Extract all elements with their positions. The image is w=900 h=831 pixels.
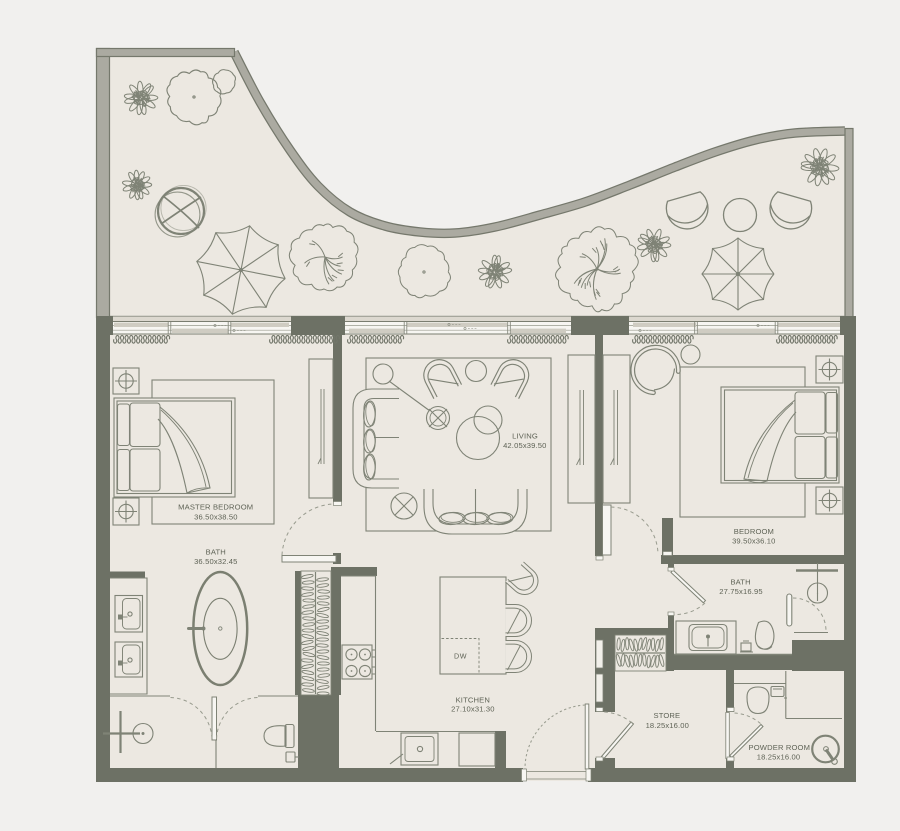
svg-text:KITCHEN: KITCHEN — [456, 695, 490, 704]
svg-text:36.50x32.45: 36.50x32.45 — [194, 557, 237, 566]
svg-text:18.25x16.00: 18.25x16.00 — [646, 721, 689, 730]
svg-text:27.10x31.30: 27.10x31.30 — [451, 705, 494, 714]
svg-text:DW: DW — [454, 652, 467, 661]
svg-text:BEDROOM: BEDROOM — [734, 527, 774, 536]
svg-text:36.50x38.50: 36.50x38.50 — [194, 512, 237, 521]
svg-text:LIVING: LIVING — [512, 431, 538, 440]
svg-text:42.05x39.50: 42.05x39.50 — [503, 441, 546, 450]
svg-text:POWDER ROOM: POWDER ROOM — [749, 743, 811, 752]
svg-text:27.75x16.95: 27.75x16.95 — [719, 587, 762, 596]
svg-text:18.25x16.00: 18.25x16.00 — [757, 753, 800, 762]
svg-text:MASTER BEDROOM: MASTER BEDROOM — [178, 503, 253, 512]
svg-text:BATH: BATH — [730, 578, 750, 587]
svg-text:39.50x36.10: 39.50x36.10 — [732, 536, 775, 545]
svg-text:BATH: BATH — [206, 548, 226, 557]
svg-text:STORE: STORE — [654, 711, 681, 720]
